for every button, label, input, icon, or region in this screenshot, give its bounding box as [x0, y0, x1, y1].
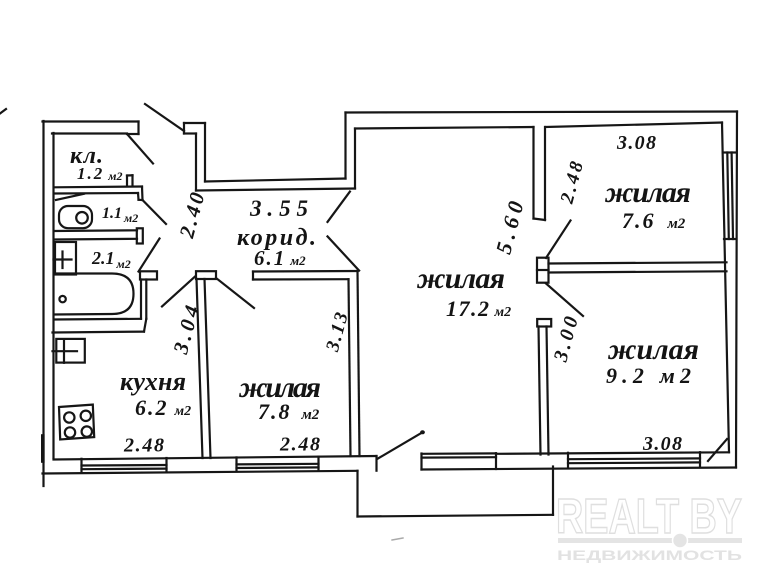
svg-text:3.08: 3.08	[616, 132, 656, 154]
svg-text:6.2м2: 6.2м2	[135, 395, 191, 420]
svg-text:2.48: 2.48	[556, 157, 588, 207]
svg-text:7.6м2: 7.6м2	[622, 208, 686, 233]
svg-text:REALT BY: REALT BY	[556, 490, 742, 544]
svg-text:2.48: 2.48	[123, 435, 164, 457]
svg-text:жилая: жилая	[607, 333, 699, 366]
svg-text:жилая: жилая	[416, 262, 505, 295]
svg-text:1.1м2: 1.1м2	[102, 205, 138, 225]
svg-text:17.2м2: 17.2м2	[446, 296, 511, 321]
svg-text:жилая: жилая	[604, 176, 691, 209]
svg-text:5.60: 5.60	[491, 194, 530, 257]
svg-text:НЕДВИЖИМОСТЬ: НЕДВИЖИМОСТЬ	[557, 548, 742, 563]
svg-text:2.48: 2.48	[279, 434, 320, 456]
svg-text:2.40: 2.40	[174, 187, 210, 241]
svg-text:3.08: 3.08	[642, 433, 682, 455]
svg-text:2.1м2: 2.1м2	[91, 248, 131, 271]
svg-text:кухня: кухня	[120, 367, 186, 396]
svg-text:9.2 м2: 9.2 м2	[606, 363, 691, 388]
svg-text:3.55: 3.55	[249, 196, 308, 221]
svg-text:1.2м2: 1.2м2	[77, 164, 122, 183]
svg-text:3.00: 3.00	[549, 311, 583, 365]
